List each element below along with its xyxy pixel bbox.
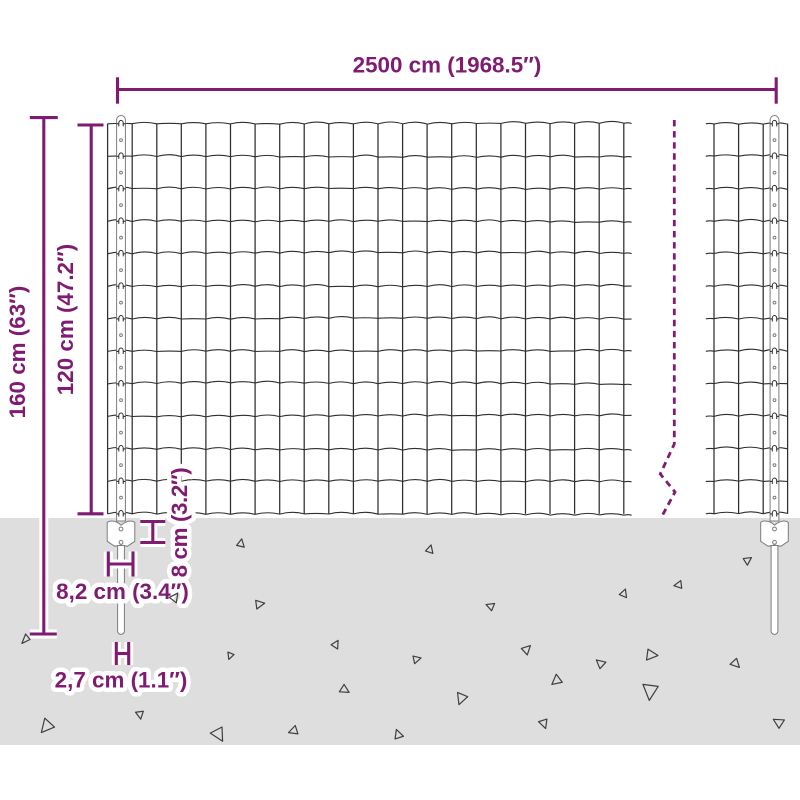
svg-text:8,2 cm (3.4″): 8,2 cm (3.4″)	[56, 579, 189, 604]
svg-text:160 cm (63″): 160 cm (63″)	[5, 286, 30, 419]
svg-text:2500 cm (1968.5″): 2500 cm (1968.5″)	[353, 53, 542, 78]
svg-text:8 cm (3.2″): 8 cm (3.2″)	[167, 468, 192, 578]
svg-text:120 cm (47.2″): 120 cm (47.2″)	[53, 244, 78, 395]
svg-text:2,7 cm (1.1″): 2,7 cm (1.1″)	[55, 668, 188, 693]
